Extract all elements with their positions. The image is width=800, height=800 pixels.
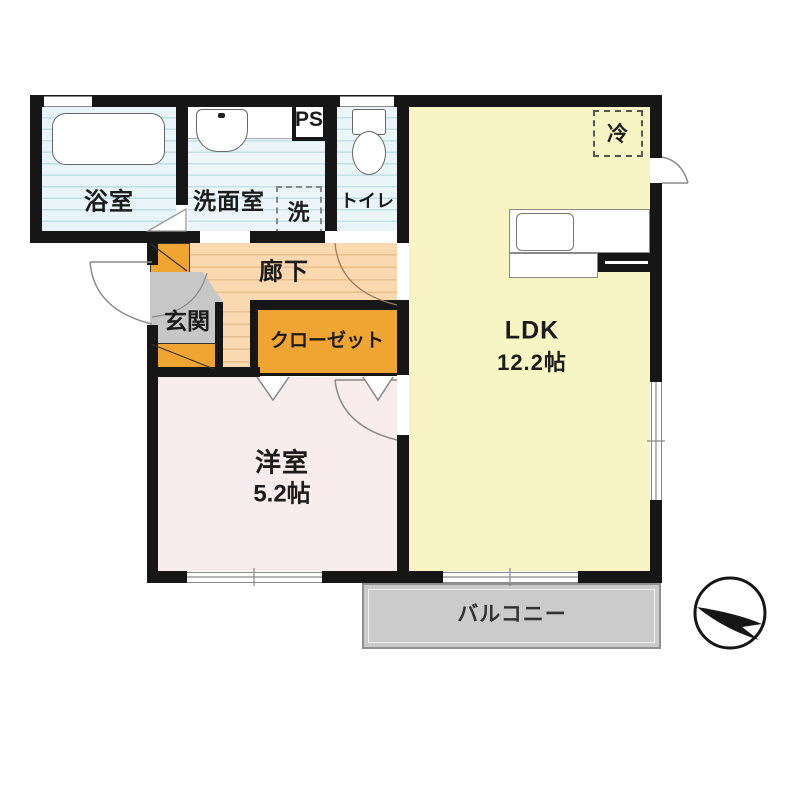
- closet-bifold-mark: [363, 377, 393, 400]
- plan-annotations: [0, 0, 800, 800]
- hallway-label: 廊下: [259, 252, 309, 287]
- closet-label: クローゼット: [270, 326, 384, 353]
- bath-door-mark: [148, 209, 186, 231]
- washroom-label: 洗面室: [193, 182, 265, 216]
- closet-bifold-mark: [257, 377, 289, 400]
- refrigerator-label: 冷: [607, 118, 629, 148]
- window-tick: [647, 382, 665, 500]
- bathroom-label: 浴室: [84, 182, 134, 217]
- laundry-label: 洗: [287, 195, 310, 227]
- pipe-space-label: PS: [295, 108, 323, 132]
- western-room-size-label: 5.2帖: [253, 474, 310, 509]
- cabinet-diagonal: [151, 244, 187, 271]
- balcony-label: バルコニー: [457, 598, 567, 628]
- toilet-label: トイレ: [340, 187, 394, 213]
- ldk-size-label: 12.2帖: [497, 345, 567, 377]
- window-tick: [443, 568, 578, 586]
- ldk-label: LDK: [505, 317, 559, 346]
- entry-door-arc: [90, 262, 152, 324]
- entrance-label: 玄関: [164, 302, 210, 336]
- floor-plan: 浴室 洗面室 洗 トイレ PS 冷 LDK 12.2帖 廊下 玄関 クローゼット…: [0, 0, 800, 800]
- toilet-door-arc: [335, 243, 397, 305]
- western-door-arc: [335, 380, 397, 440]
- ldk-door-arc: [662, 157, 688, 183]
- window-tick: [187, 568, 322, 586]
- cabinet-diagonal: [151, 344, 214, 369]
